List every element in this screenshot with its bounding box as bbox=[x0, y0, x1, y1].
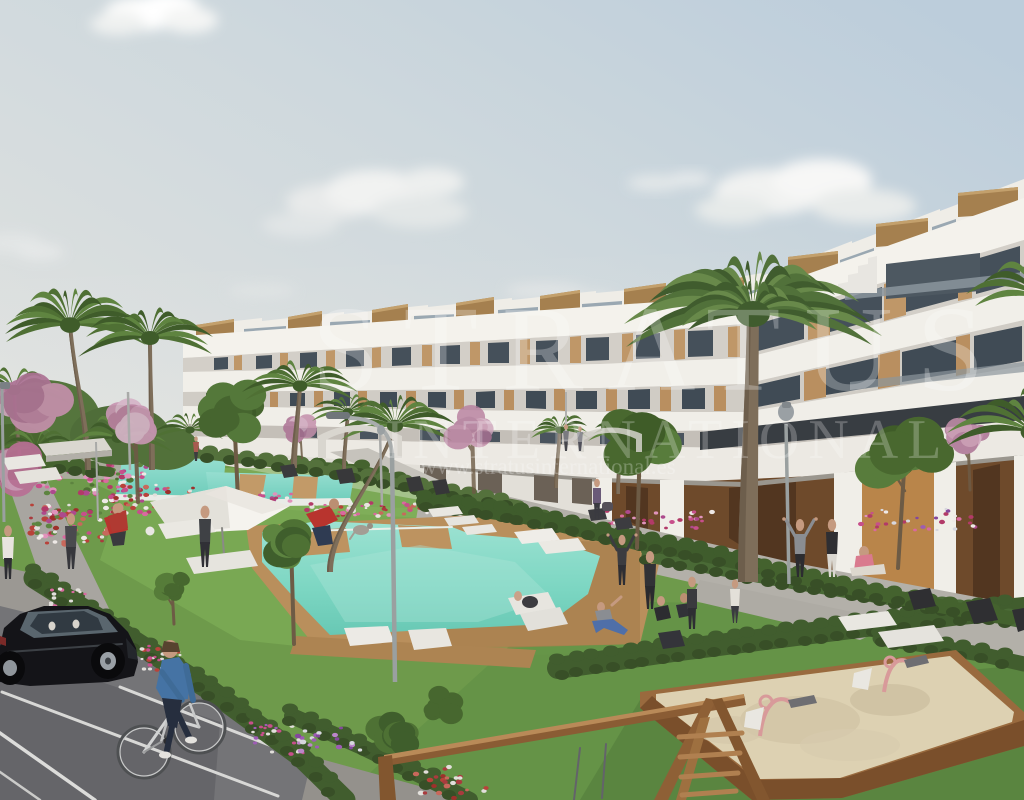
svg-text:www.stratusinternational.es: www.stratusinternational.es bbox=[420, 454, 675, 479]
svg-text:STRATUS: STRATUS bbox=[312, 282, 1009, 417]
